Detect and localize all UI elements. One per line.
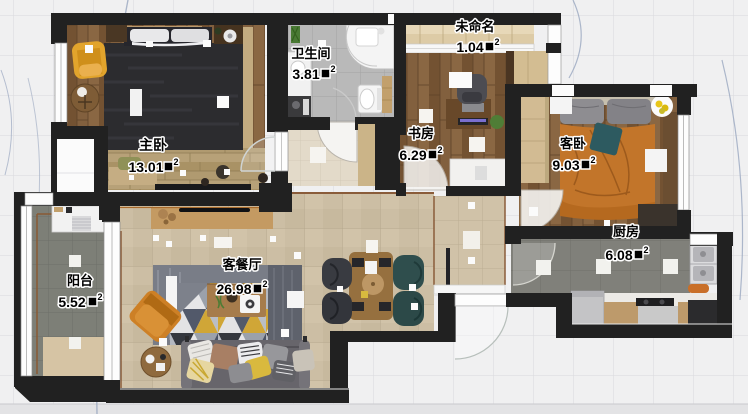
- svg-text:2: 2: [97, 292, 102, 302]
- svg-text:13.01: 13.01: [128, 159, 163, 175]
- svg-text:3.81: 3.81: [292, 66, 319, 82]
- svg-text:厨房: 厨房: [613, 224, 639, 239]
- svg-text:书房: 书房: [408, 126, 434, 141]
- svg-text:客餐厅: 客餐厅: [222, 257, 261, 272]
- svg-text:2: 2: [330, 64, 335, 74]
- svg-text:未命名: 未命名: [454, 19, 494, 34]
- svg-text:2: 2: [643, 245, 648, 255]
- svg-text:2: 2: [494, 37, 499, 47]
- svg-text:阳台: 阳台: [67, 273, 93, 288]
- svg-text:2: 2: [590, 155, 595, 165]
- svg-text:26.98: 26.98: [216, 281, 251, 297]
- svg-text:2: 2: [173, 157, 178, 167]
- svg-text:卫生间: 卫生间: [291, 46, 330, 61]
- svg-text:6.08: 6.08: [605, 247, 632, 263]
- svg-text:5.52: 5.52: [58, 294, 85, 310]
- svg-text:客卧: 客卧: [560, 136, 586, 151]
- svg-text:6.29: 6.29: [399, 147, 426, 163]
- svg-text:主卧: 主卧: [139, 137, 167, 153]
- svg-text:1.04: 1.04: [456, 39, 483, 55]
- svg-text:2: 2: [262, 279, 267, 289]
- svg-text:9.03: 9.03: [552, 157, 579, 173]
- svg-text:2: 2: [437, 145, 442, 155]
